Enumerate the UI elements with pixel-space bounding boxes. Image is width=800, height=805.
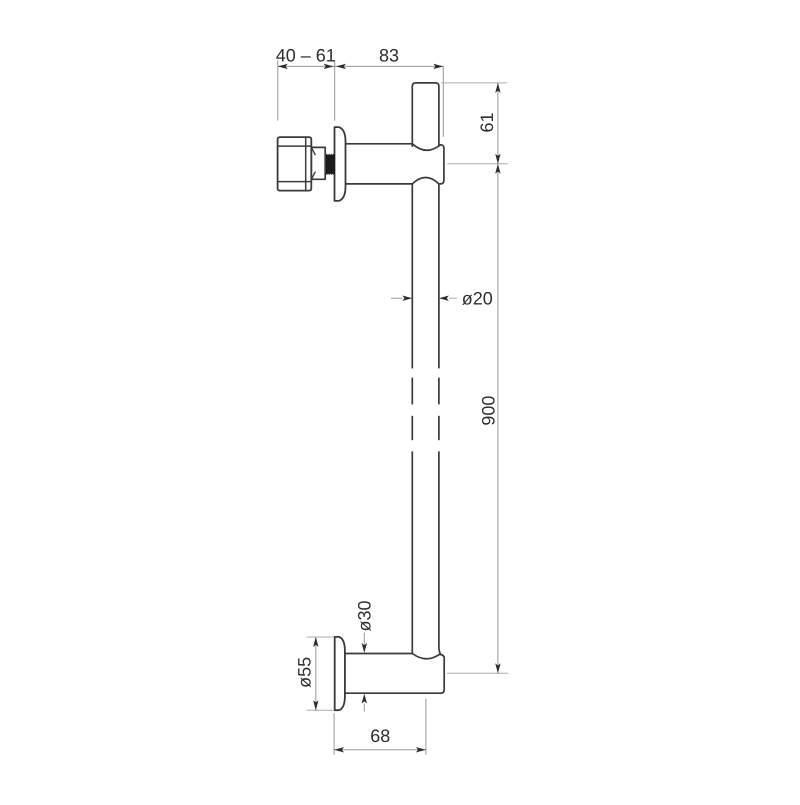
svg-text:83: 83 xyxy=(379,46,399,66)
svg-text:ø30: ø30 xyxy=(354,600,374,631)
svg-text:68: 68 xyxy=(370,726,390,746)
svg-text:900: 900 xyxy=(478,396,498,426)
svg-text:ø20: ø20 xyxy=(462,289,493,309)
svg-text:40 – 61: 40 – 61 xyxy=(276,46,336,66)
svg-text:61: 61 xyxy=(477,112,497,132)
svg-text:ø55: ø55 xyxy=(295,657,315,688)
